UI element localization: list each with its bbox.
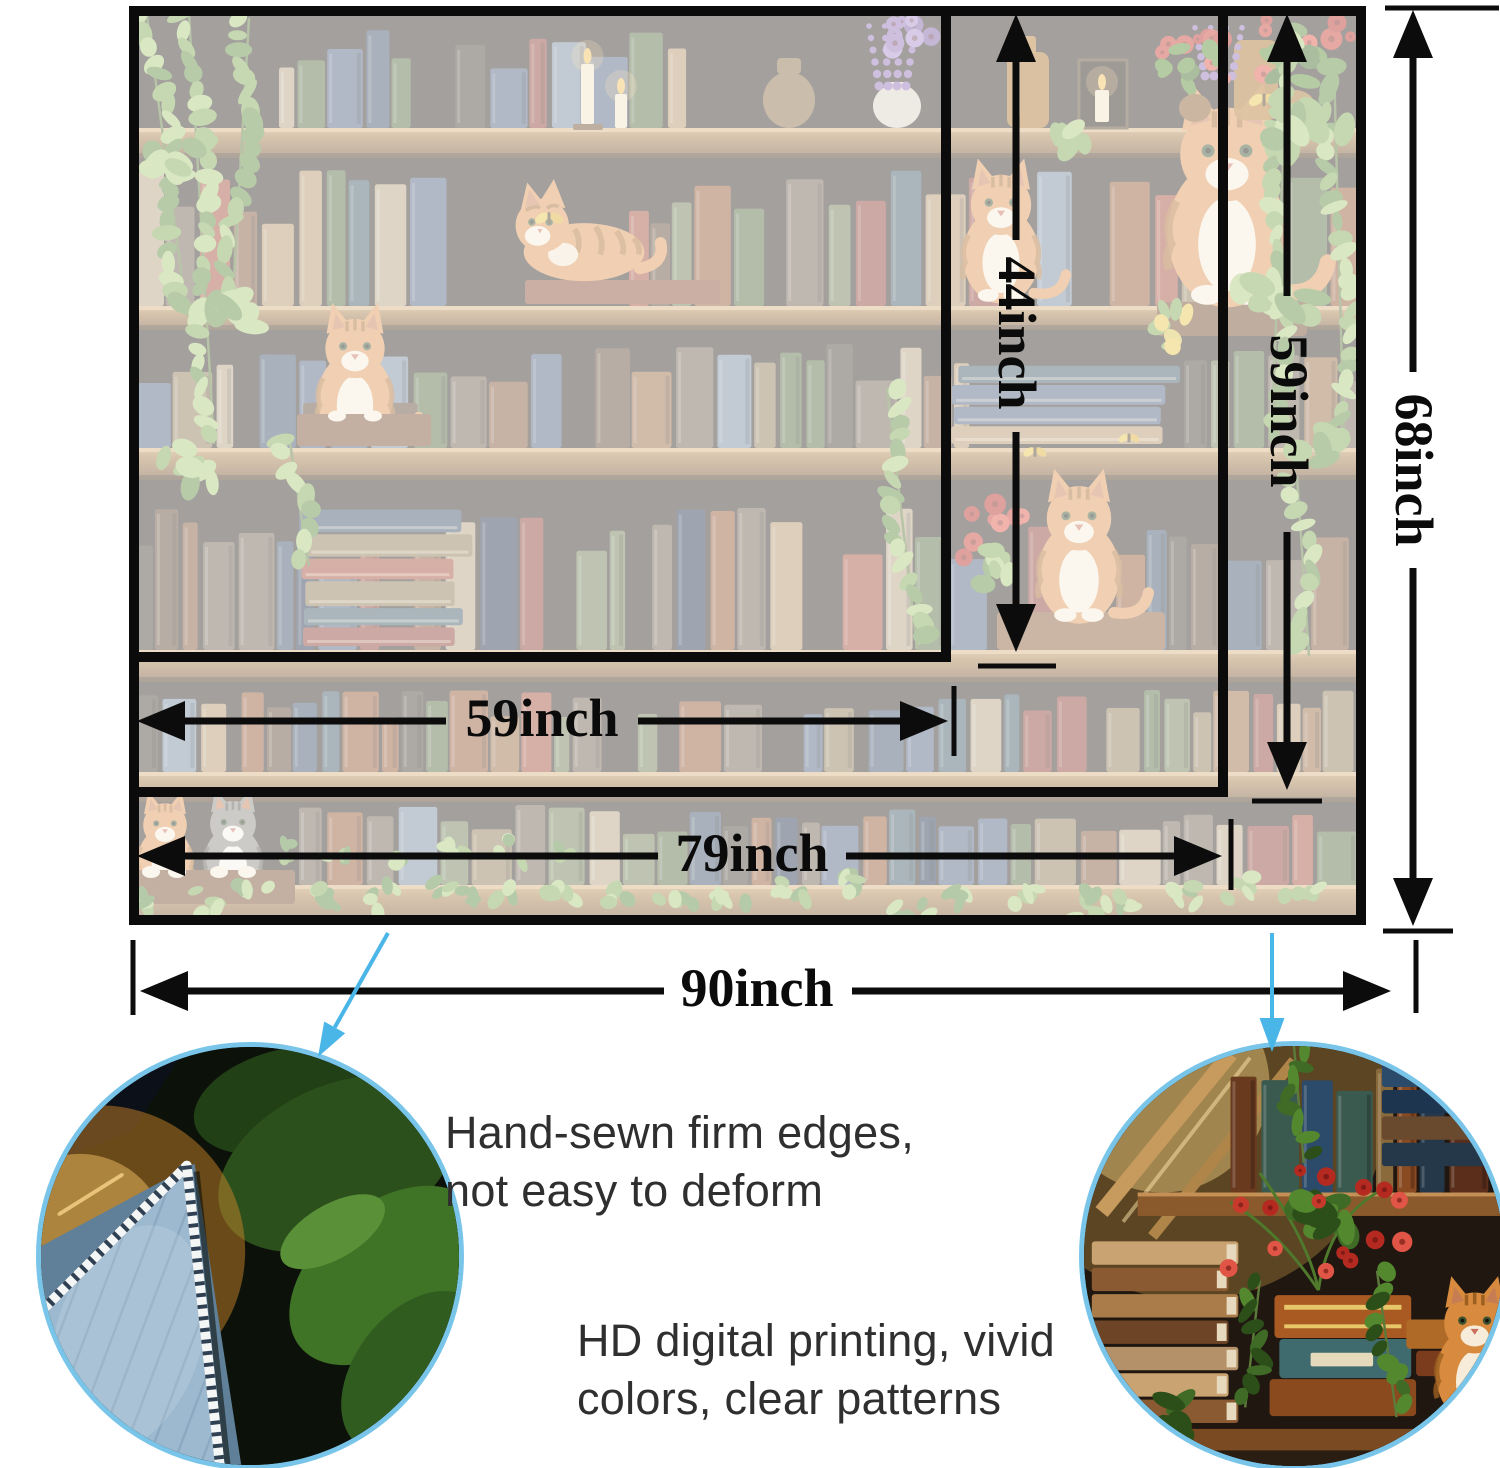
height-label-small: 44inch	[986, 256, 1048, 409]
callout-line: HD digital printing, vivid	[577, 1312, 1055, 1370]
pointer-line	[335, 933, 388, 1027]
arrowhead-icon	[1393, 10, 1433, 58]
size-outline-90x68	[129, 6, 1366, 925]
detail-circle-stitching	[36, 1042, 464, 1468]
arrowhead-icon	[140, 971, 188, 1011]
callout-text-print: HD digital printing, vivid colors, clear…	[577, 1312, 1055, 1428]
callout-text-stitching: Hand-sewn firm edges, not easy to deform	[445, 1104, 914, 1220]
width-label-small: 59inch	[465, 687, 618, 749]
pointer-arrow-left-icon	[318, 1022, 345, 1058]
arrowhead-icon	[1343, 971, 1391, 1011]
print-closeup-photo	[1084, 1046, 1500, 1466]
callout-line: not easy to deform	[445, 1162, 914, 1220]
stitching-closeup-photo	[41, 1047, 459, 1465]
width-label-medium: 79inch	[675, 822, 828, 884]
callout-line: colors, clear patterns	[577, 1370, 1055, 1428]
detail-circle-print	[1079, 1041, 1500, 1468]
height-label-large: 68inch	[1383, 393, 1445, 546]
callout-line: Hand-sewn firm edges,	[445, 1104, 914, 1162]
width-label-large: 90inch	[680, 957, 833, 1019]
product-size-diagram-image: 44inch 59inch 68inch 59inch 79inch 90inc…	[0, 0, 1500, 1468]
arrowhead-icon	[1393, 878, 1433, 926]
height-label-medium: 59inch	[1258, 334, 1320, 487]
